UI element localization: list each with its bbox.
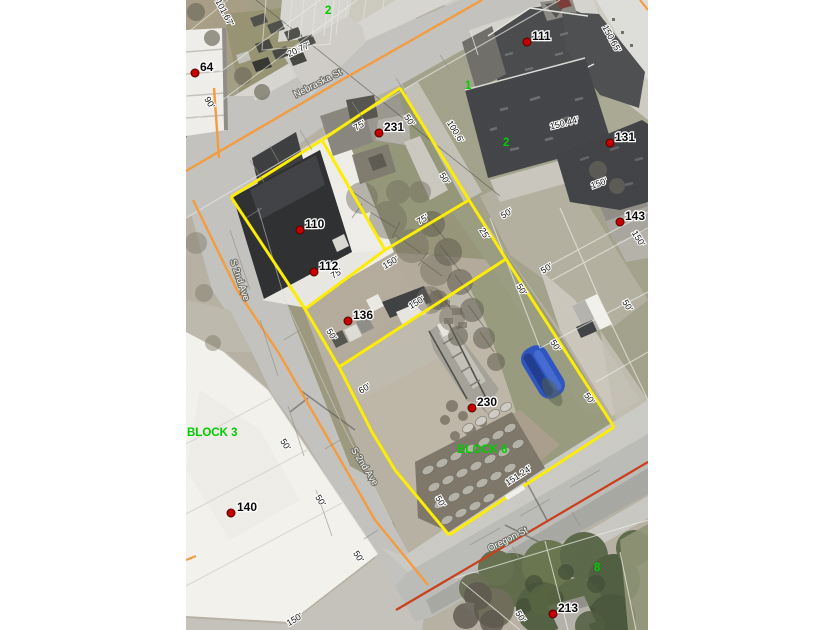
svg-text:BLOCK 3: BLOCK 3 <box>187 427 237 439</box>
svg-text:112: 112 <box>319 259 339 273</box>
svg-text:143: 143 <box>625 209 645 223</box>
svg-text:2: 2 <box>325 5 331 17</box>
svg-text:213: 213 <box>558 601 578 615</box>
svg-text:BLOCK 6: BLOCK 6 <box>457 444 507 456</box>
svg-text:231: 231 <box>384 120 404 134</box>
svg-text:1: 1 <box>465 80 472 92</box>
svg-text:140: 140 <box>237 500 257 514</box>
svg-text:64: 64 <box>200 60 214 74</box>
svg-text:131: 131 <box>615 130 635 144</box>
svg-text:111: 111 <box>532 29 551 43</box>
svg-text:8: 8 <box>594 562 601 574</box>
svg-text:2: 2 <box>503 137 509 149</box>
svg-text:110: 110 <box>305 217 325 231</box>
svg-text:230: 230 <box>477 395 497 409</box>
svg-text:136: 136 <box>353 308 373 322</box>
